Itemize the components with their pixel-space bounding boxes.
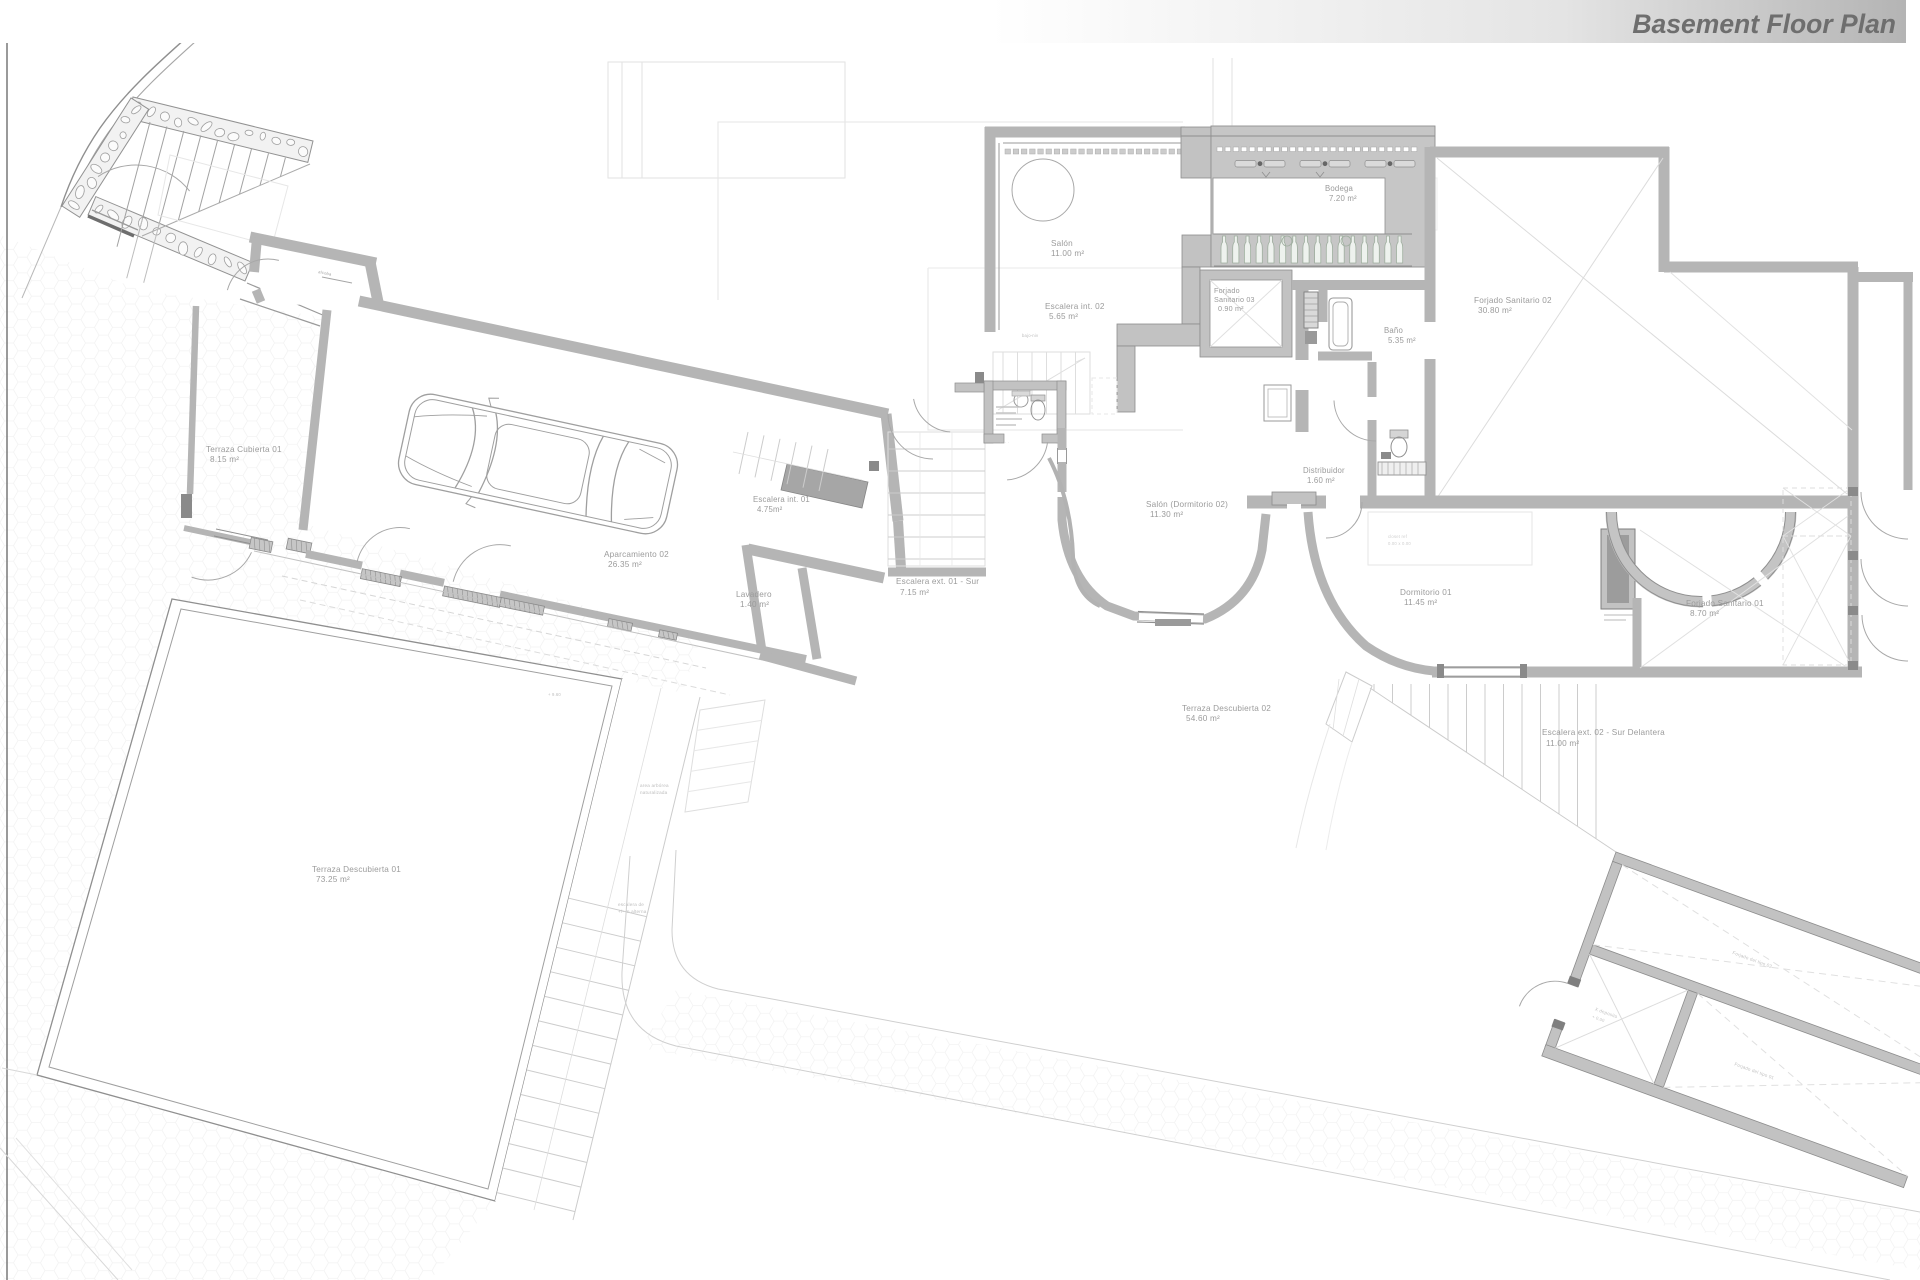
svg-text:Baño: Baño bbox=[1384, 326, 1403, 335]
svg-text:Salón: Salón bbox=[1051, 239, 1073, 248]
svg-text:7.15 m²: 7.15 m² bbox=[900, 588, 929, 597]
svg-text:11.45 m²: 11.45 m² bbox=[1404, 598, 1437, 607]
svg-text:11.00 m²: 11.00 m² bbox=[1051, 249, 1084, 258]
svg-text:Salón (Dormitorio 02): Salón (Dormitorio 02) bbox=[1146, 500, 1228, 509]
svg-text:Terraza Cubierta 01: Terraza Cubierta 01 bbox=[206, 445, 282, 454]
svg-text:5.65 m²: 5.65 m² bbox=[1049, 312, 1078, 321]
svg-text:Dormitorio 01: Dormitorio 01 bbox=[1400, 588, 1452, 597]
svg-text:Forjado Sanitario 02: Forjado Sanitario 02 bbox=[1474, 296, 1552, 305]
svg-text:8.15 m²: 8.15 m² bbox=[210, 455, 239, 464]
svg-text:1.60 m²: 1.60 m² bbox=[1307, 476, 1335, 485]
svg-text:Sanitario 03: Sanitario 03 bbox=[1214, 295, 1255, 304]
svg-text:area arbórea: area arbórea bbox=[640, 783, 669, 788]
svg-text:bajo-niv: bajo-niv bbox=[1022, 333, 1039, 338]
svg-text:+ 9.60: + 9.60 bbox=[548, 692, 561, 697]
svg-text:Bodega: Bodega bbox=[1325, 184, 1354, 193]
svg-text:Forjado Sanitario 01: Forjado Sanitario 01 bbox=[1686, 599, 1764, 608]
svg-text:Distribuidor: Distribuidor bbox=[1303, 466, 1345, 475]
svg-text:Basement Floor Plan: Basement Floor Plan bbox=[1632, 9, 1896, 39]
svg-text:Escalera int. 01: Escalera int. 01 bbox=[753, 495, 810, 504]
svg-text:11.00 m²: 11.00 m² bbox=[1546, 739, 1579, 748]
svg-text:escalera de: escalera de bbox=[618, 902, 644, 907]
svg-text:4.75m²: 4.75m² bbox=[757, 505, 783, 514]
svg-text:+/- m alterna: +/- m alterna bbox=[618, 909, 647, 914]
svg-text:73.25 m²: 73.25 m² bbox=[316, 875, 350, 884]
svg-text:7.20 m²: 7.20 m² bbox=[1329, 194, 1357, 203]
svg-text:Terraza Descubierta 02: Terraza Descubierta 02 bbox=[1182, 704, 1271, 713]
svg-text:Terraza Descubierta 01: Terraza Descubierta 01 bbox=[312, 865, 401, 874]
svg-text:30.80 m²: 30.80 m² bbox=[1478, 306, 1512, 315]
svg-text:1.40 m²: 1.40 m² bbox=[740, 600, 769, 609]
svg-text:naturalizada: naturalizada bbox=[640, 790, 668, 795]
svg-text:54.60 m²: 54.60 m² bbox=[1186, 714, 1220, 723]
svg-text:0.90 m²: 0.90 m² bbox=[1218, 304, 1244, 313]
svg-text:closet ref: closet ref bbox=[1388, 534, 1408, 539]
svg-text:11.30 m²: 11.30 m² bbox=[1150, 510, 1183, 519]
svg-text:8.70 m²: 8.70 m² bbox=[1690, 609, 1719, 618]
svg-text:Escalera ext. 02 - Sur Delante: Escalera ext. 02 - Sur Delantera bbox=[1542, 728, 1665, 737]
svg-text:Escalera ext. 01 - Sur: Escalera ext. 01 - Sur bbox=[896, 577, 979, 586]
svg-text:Lavadero: Lavadero bbox=[736, 590, 772, 599]
svg-text:26.35 m²: 26.35 m² bbox=[608, 560, 642, 569]
svg-text:5.35 m²: 5.35 m² bbox=[1388, 336, 1416, 345]
svg-text:. . . .: . . . . bbox=[1000, 439, 1009, 444]
svg-text:Escalera int. 02: Escalera int. 02 bbox=[1045, 302, 1105, 311]
svg-text:0.00 x 0.00: 0.00 x 0.00 bbox=[1388, 541, 1411, 546]
svg-text:Forjado: Forjado bbox=[1214, 286, 1240, 295]
svg-text:Aparcamiento 02: Aparcamiento 02 bbox=[604, 550, 669, 559]
